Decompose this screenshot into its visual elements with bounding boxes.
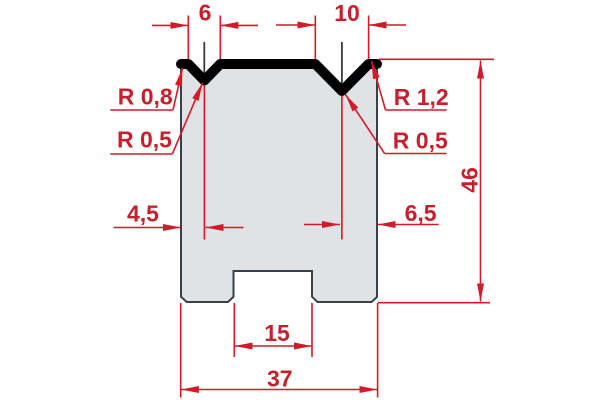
svg-text:R 0,8: R 0,8 [118,84,173,110]
svg-text:6: 6 [199,0,212,26]
svg-text:15: 15 [264,320,290,346]
svg-text:6,5: 6,5 [405,200,437,226]
svg-text:37: 37 [267,365,293,391]
svg-text:R 0,5: R 0,5 [393,128,448,154]
svg-text:10: 10 [334,0,360,26]
svg-text:46: 46 [457,167,483,193]
svg-text:R 1,2: R 1,2 [394,84,449,110]
svg-text:R 0,5: R 0,5 [117,127,172,153]
svg-text:4,5: 4,5 [127,201,159,227]
